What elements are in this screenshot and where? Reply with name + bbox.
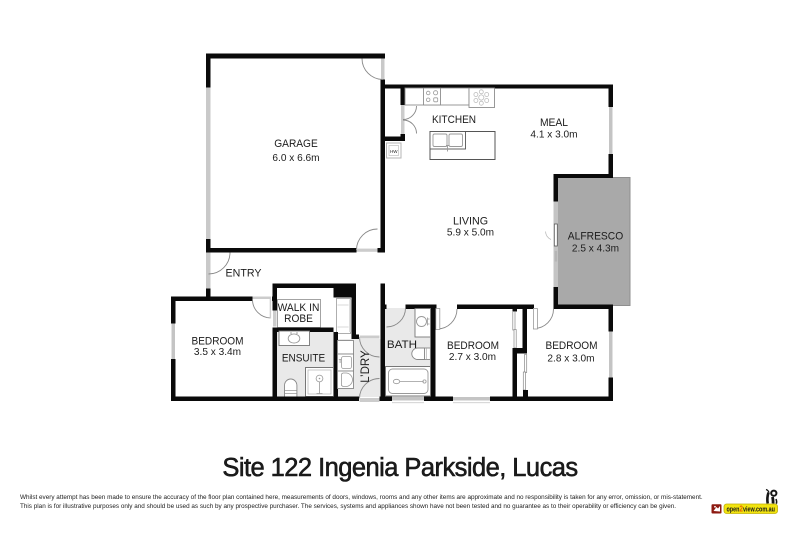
svg-text:LIVING: LIVING bbox=[453, 216, 488, 228]
svg-text:Whilst every attempt has been: Whilst every attempt has been made to en… bbox=[20, 494, 703, 501]
svg-text:2.7 x 3.0m: 2.7 x 3.0m bbox=[449, 352, 496, 363]
svg-text:BEDROOM: BEDROOM bbox=[447, 340, 499, 352]
svg-text:ENSUITE: ENSUITE bbox=[282, 352, 325, 364]
svg-text:6.0 x 6.6m: 6.0 x 6.6m bbox=[272, 153, 319, 164]
svg-text:Site 122 Ingenia Parkside, Luc: Site 122 Ingenia Parkside, Lucas bbox=[222, 454, 577, 482]
svg-text:BEDROOM: BEDROOM bbox=[192, 336, 244, 348]
svg-text:2.8 x 3.0m: 2.8 x 3.0m bbox=[547, 353, 594, 364]
svg-text:ENTRY: ENTRY bbox=[226, 268, 262, 280]
svg-text:3.5 x 3.4m: 3.5 x 3.4m bbox=[194, 347, 241, 358]
svg-text:WALK IN: WALK IN bbox=[278, 302, 320, 314]
svg-text:This plan is for illustrative: This plan is for illustrative purposes o… bbox=[20, 503, 676, 510]
svg-text:5.9 x 5.0m: 5.9 x 5.0m bbox=[447, 228, 494, 239]
svg-text:ROBE: ROBE bbox=[284, 313, 313, 325]
svg-text:open2view.com.au: open2view.com.au bbox=[727, 503, 776, 513]
svg-text:ALFRESCO: ALFRESCO bbox=[568, 230, 624, 242]
svg-text:KITCHEN: KITCHEN bbox=[432, 114, 476, 126]
svg-text:MEAL: MEAL bbox=[540, 117, 568, 129]
svg-text:L’DRY: L’DRY bbox=[359, 350, 372, 383]
svg-text:GARAGE: GARAGE bbox=[274, 138, 318, 150]
svg-text:HW: HW bbox=[390, 149, 398, 154]
svg-text:4.1 x 3.0m: 4.1 x 3.0m bbox=[530, 129, 577, 140]
svg-text:BEDROOM: BEDROOM bbox=[546, 340, 598, 352]
svg-text:2.5 x 4.3m: 2.5 x 4.3m bbox=[572, 243, 619, 254]
svg-text:BATH: BATH bbox=[387, 339, 417, 351]
